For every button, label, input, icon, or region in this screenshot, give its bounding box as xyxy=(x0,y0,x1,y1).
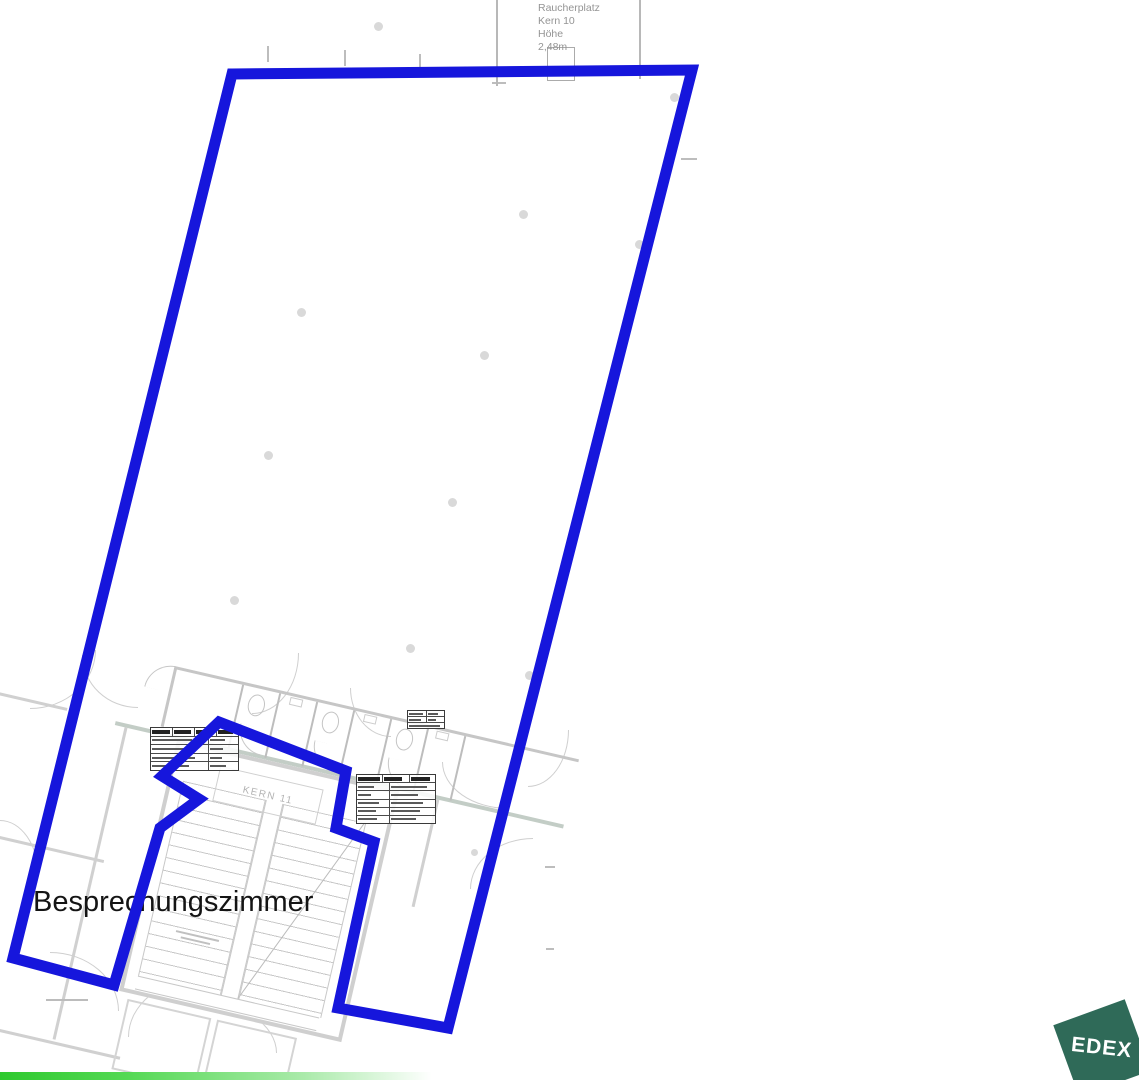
wc-partition xyxy=(338,710,355,775)
wall-raucherplatz-left xyxy=(496,0,498,86)
raucherplatz-note-line: Raucherplatz xyxy=(538,2,600,15)
column-grid-dot xyxy=(264,451,273,460)
tiny-plan-text xyxy=(46,999,88,1001)
stairwell-label: KERN 11 xyxy=(242,784,295,806)
wall-bottom xyxy=(0,1016,120,1059)
raucherplatz-note-line: Kern 10 xyxy=(538,15,600,28)
sink-icon xyxy=(289,697,303,708)
wall-room-left xyxy=(0,806,104,863)
wc-partition xyxy=(264,693,281,758)
column-grid-dot xyxy=(480,351,489,360)
column-grid-dot xyxy=(374,22,383,31)
floorplan-viewer: KERN 11 Raucherplatz Kern 10 Höhe xyxy=(0,0,1139,1080)
toilet-icon xyxy=(394,727,416,752)
room-below-stair xyxy=(111,999,211,1080)
wall-vertical-left xyxy=(53,727,128,1039)
room-label: Besprechungszimmer xyxy=(33,886,313,919)
footer-accent-bar xyxy=(0,1072,432,1080)
room-stamp-table xyxy=(150,727,239,771)
column-grid-dot xyxy=(230,596,239,605)
toilet-icon xyxy=(320,710,342,735)
column-grid-dot xyxy=(670,93,679,102)
wall-raucherplatz-right xyxy=(639,0,641,79)
brand-logo: EDEX xyxy=(1056,1004,1139,1080)
column-grid-dot xyxy=(525,671,534,680)
wc-partition xyxy=(449,736,466,801)
floorplan-underlay: KERN 11 xyxy=(0,600,741,1080)
raucherplatz-note-line: 2,48m xyxy=(538,41,600,54)
sink-icon xyxy=(435,731,449,742)
tick-mark xyxy=(492,82,506,84)
raucherplatz-note-line: Höhe xyxy=(538,28,600,41)
room-stamp-label xyxy=(407,710,445,729)
column-grid-dot xyxy=(406,644,415,653)
column-grid-dot xyxy=(519,210,528,219)
logo-square: EDEX xyxy=(1053,999,1139,1080)
toilet-icon xyxy=(246,693,268,718)
tick-mark xyxy=(419,54,421,69)
logo-text: EDEX xyxy=(1070,1033,1133,1063)
wall-corridor-left xyxy=(0,670,67,711)
tick-mark xyxy=(344,50,346,66)
tick-mark xyxy=(267,46,269,62)
sink-icon xyxy=(363,714,377,725)
column-grid-dot xyxy=(635,240,644,249)
column-grid-dot xyxy=(448,498,457,507)
raucherplatz-note: Raucherplatz Kern 10 Höhe 2,48m xyxy=(538,2,600,54)
column-grid-dot xyxy=(297,308,306,317)
room-stamp-table xyxy=(356,774,436,824)
tick-mark xyxy=(681,158,697,160)
